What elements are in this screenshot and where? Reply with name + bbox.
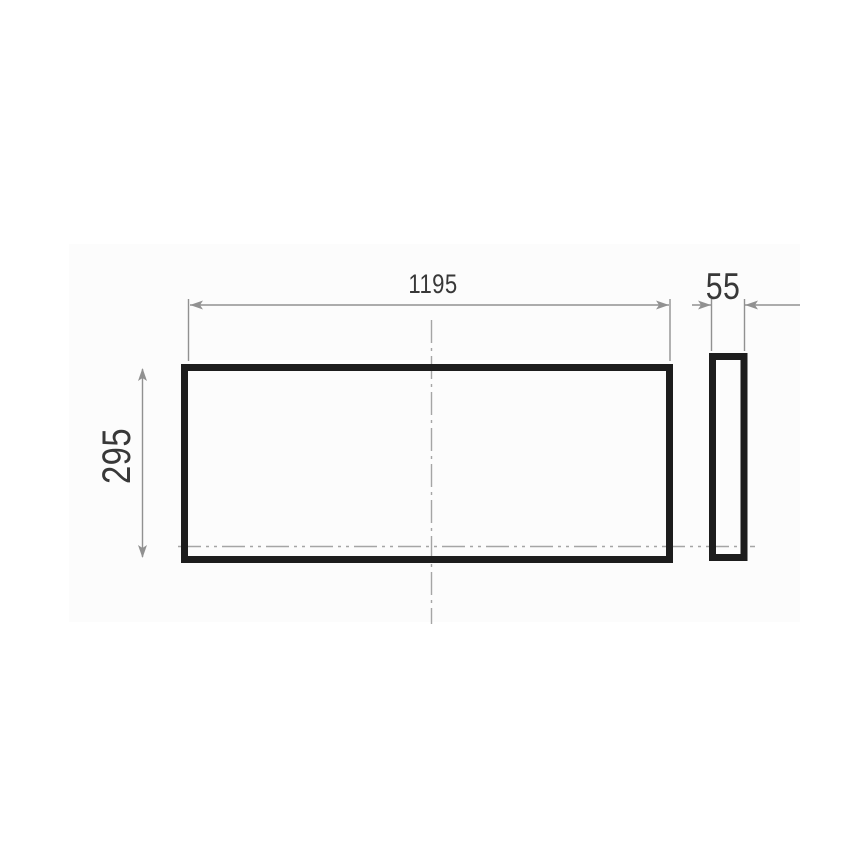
height-dimension-label: 295 (94, 428, 139, 484)
depth-dimension-label: 55 (706, 266, 741, 308)
drawing-area-background (69, 244, 800, 622)
width-dimension-label: 1195 (408, 270, 457, 300)
technical-drawing: 1195 55 295 (0, 0, 868, 868)
drawing-page: 1195 55 295 (0, 0, 868, 868)
